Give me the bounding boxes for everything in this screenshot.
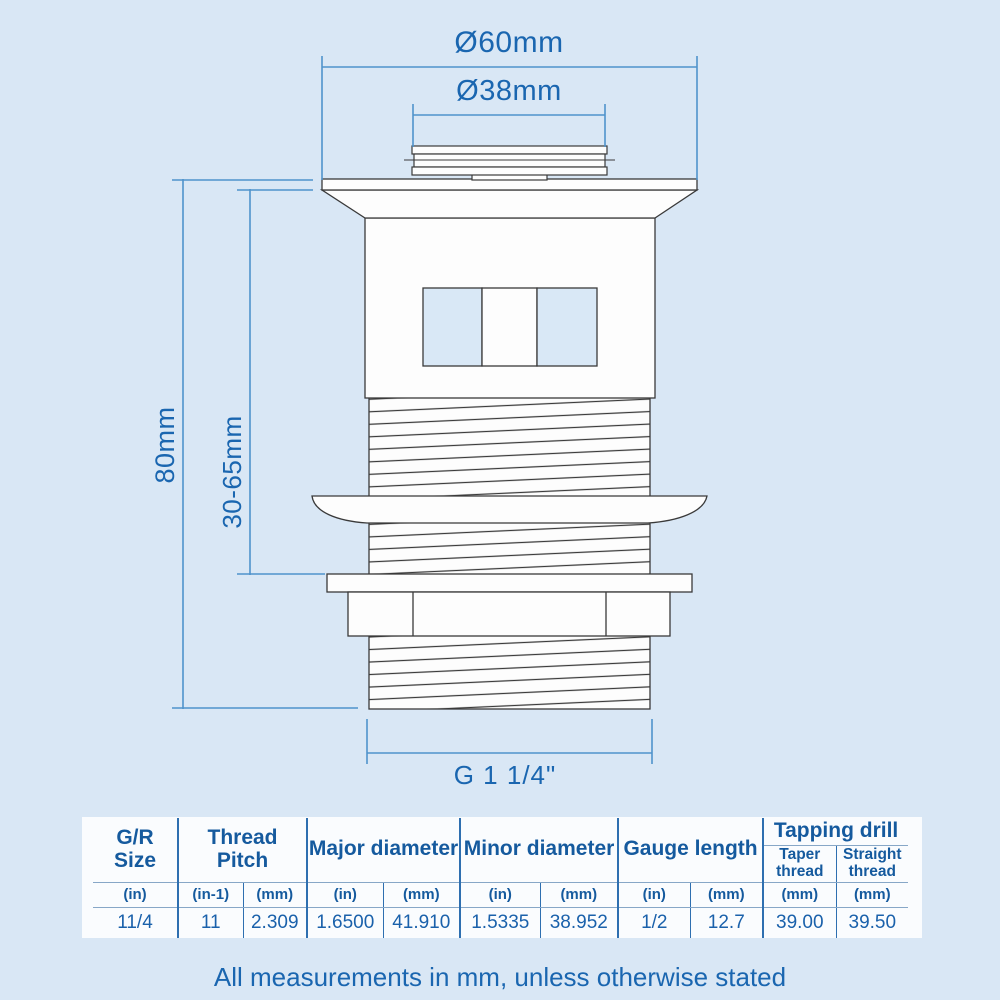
- overflow-window-left: [423, 288, 482, 366]
- col-header-taper-thread: Taper thread: [763, 845, 836, 882]
- unit-cell: (in): [460, 882, 540, 907]
- waste-body: [365, 218, 655, 398]
- col-header-gauge-length: Gauge length: [618, 818, 763, 882]
- unit-cell: (in): [618, 882, 690, 907]
- unit-cell: (in): [307, 882, 383, 907]
- slip-washer: [312, 496, 707, 523]
- col-header-thread-pitch: Thread Pitch: [178, 818, 307, 882]
- dim-label-outer-diameter: Ø60mm: [409, 26, 609, 60]
- dim-label-plug-diameter: Ø38mm: [414, 75, 604, 108]
- measurements-note: All measurements in mm, unless otherwise…: [0, 962, 1000, 993]
- unit-cell: (in): [93, 882, 178, 907]
- spec-table-panel: G/R Size Thread Pitch Major diameter Min…: [82, 817, 922, 938]
- value-cell: 39.00: [763, 907, 836, 938]
- basin-waste-spec-sheet: Ø60mm Ø38mm 80mm 30-65mm G 1 1/4" G/R Si…: [0, 0, 1000, 1000]
- value-cell: 12.7: [690, 907, 763, 938]
- unit-cell: (in-1): [178, 882, 243, 907]
- value-cell: 2.309: [243, 907, 307, 938]
- unit-cell: (mm): [383, 882, 460, 907]
- unit-cell: (mm): [540, 882, 618, 907]
- value-cell: 1.5335: [460, 907, 540, 938]
- value-cell: 1.6500: [307, 907, 383, 938]
- value-cell: 38.952: [540, 907, 618, 938]
- dim-label-clamp-range: 30-65mm: [217, 406, 247, 538]
- value-cell: 39.50: [836, 907, 908, 938]
- thread-spec-table: G/R Size Thread Pitch Major diameter Min…: [93, 818, 908, 938]
- overflow-window-middle: [482, 288, 537, 366]
- unit-cell: (mm): [763, 882, 836, 907]
- overflow-window-right: [537, 288, 597, 366]
- col-header-gr-size: G/R Size: [93, 818, 178, 882]
- col-header-straight-thread: Straight thread: [836, 845, 908, 882]
- col-header-tapping-drill: Tapping drill: [763, 818, 908, 845]
- col-header-major-diameter: Major diameter: [307, 818, 460, 882]
- value-cell: 11: [178, 907, 243, 938]
- unit-cell: (mm): [690, 882, 763, 907]
- unit-cell: (mm): [243, 882, 307, 907]
- plug-cap: [404, 146, 615, 180]
- value-cell: 41.910: [383, 907, 460, 938]
- dim-label-thread-size: G 1 1/4": [405, 760, 605, 791]
- value-cell: 1/2: [618, 907, 690, 938]
- backnut: [327, 574, 692, 636]
- threaded-tail: [369, 397, 650, 709]
- col-header-minor-diameter: Minor diameter: [460, 818, 618, 882]
- unit-cell: (mm): [836, 882, 908, 907]
- top-flange: [322, 179, 697, 218]
- value-cell: 11/4: [93, 907, 178, 938]
- dim-label-overall-height: 80mm: [150, 395, 180, 495]
